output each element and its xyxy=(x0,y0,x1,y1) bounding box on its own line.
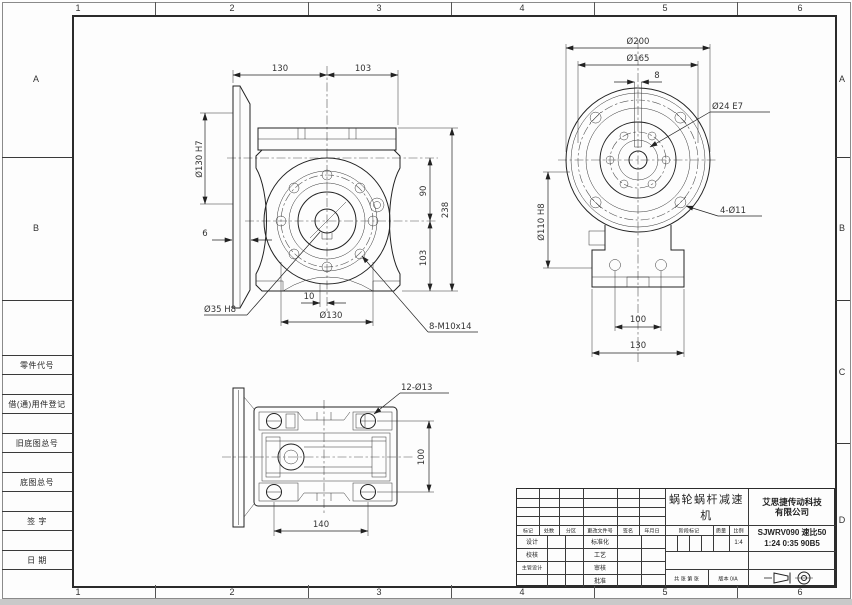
label-design: 设计 xyxy=(517,535,547,548)
dim-front-output-bore: Ø35 H8 xyxy=(204,304,236,315)
dim-side-input-bore: Ø24 E7 xyxy=(712,101,743,112)
title-model: SJWRV090 速比50 1:24 0:35 90B5 xyxy=(748,525,836,551)
title-product-name: 蜗轮蜗杆减速机 xyxy=(665,489,748,525)
first-angle-projection-icon xyxy=(762,570,822,586)
company-line1: 艾思捷传动科技 xyxy=(762,497,822,507)
dim-side-keyway-width: 8 xyxy=(654,71,659,81)
label-scale: 比例 xyxy=(730,526,746,535)
dim-bottom-hole-span-width: 140 xyxy=(313,520,329,530)
dim-front-keyway-offset: 10 xyxy=(304,292,315,302)
dim-bottom-hole-span-depth: 100 xyxy=(417,449,427,465)
projection-symbol xyxy=(748,569,836,587)
dim-front-tapped-holes: 8-M10x14 xyxy=(429,322,471,332)
front-view: 130 103 Ø130 H7 6 90 103 238 10 xyxy=(194,64,478,332)
label-chief-design: 主管设计 xyxy=(519,562,545,573)
dim-front-center-height: 90 xyxy=(419,186,429,197)
label-approve: 批准 xyxy=(583,574,617,587)
dim-front-total-height: 238 xyxy=(441,202,451,218)
label-stage-mark: 阶段标记 xyxy=(669,526,710,535)
dim-side-foot-width: 130 xyxy=(630,341,646,351)
drawing-sheet: 1 2 3 4 5 6 1 2 3 4 5 6 A B A B C D 零件代号… xyxy=(0,0,852,605)
dim-front-flange-spigot: Ø130 H7 xyxy=(194,140,205,177)
label-review: 审核 xyxy=(583,561,617,574)
model-line2: 1:24 0:35 90B5 xyxy=(758,538,827,549)
dim-side-foot-hole-span: 100 xyxy=(630,315,646,325)
label-date: 年月日 xyxy=(641,526,663,535)
dim-side-outer-dia: Ø200 xyxy=(627,36,650,47)
label-weight: 质量 xyxy=(714,526,728,535)
label-sheets: 共 张 第 张 xyxy=(668,570,705,585)
dim-front-bolt-circle: Ø130 xyxy=(320,310,343,321)
title-company-name: 艾思捷传动科技 有限公司 xyxy=(748,489,836,525)
dim-side-pilot-dia: Ø110 H8 xyxy=(536,203,547,240)
dim-front-lower-height: 103 xyxy=(419,250,429,266)
label-change-file-no: 更改文件号 xyxy=(586,526,615,535)
model-line1: SJWRV090 速比50 xyxy=(758,527,827,538)
scale-value: 1:4 xyxy=(729,535,748,551)
label-version: 版本 0/A xyxy=(711,570,745,585)
dim-front-flange-thickness: 6 xyxy=(202,229,207,239)
company-line2: 有限公司 xyxy=(762,507,822,517)
label-check: 校核 xyxy=(517,548,547,561)
title-block: 蜗轮蜗杆减速机 艾思捷传动科技 有限公司 SJWRV090 速比50 1:24 … xyxy=(516,488,835,586)
dim-front-width-right: 103 xyxy=(355,64,371,74)
label-count: 处数 xyxy=(541,526,558,535)
bottom-view: 12-Ø13 100 140 xyxy=(222,382,449,536)
dim-side-flange-holes: 4-Ø11 xyxy=(720,205,746,216)
label-signature: 签名 xyxy=(619,526,638,535)
dim-front-width-left: 130 xyxy=(272,64,288,74)
label-process: 工艺 xyxy=(583,548,617,561)
side-view: Ø200 Ø165 8 Ø24 E7 4-Ø11 Ø110 H8 100 xyxy=(536,36,770,362)
label-mark: 标记 xyxy=(519,526,538,535)
dim-side-bolt-circle: Ø165 xyxy=(627,53,650,64)
label-standardize: 标准化 xyxy=(583,535,617,548)
label-zone: 分区 xyxy=(561,526,581,535)
dim-bottom-foot-holes: 12-Ø13 xyxy=(401,382,432,393)
